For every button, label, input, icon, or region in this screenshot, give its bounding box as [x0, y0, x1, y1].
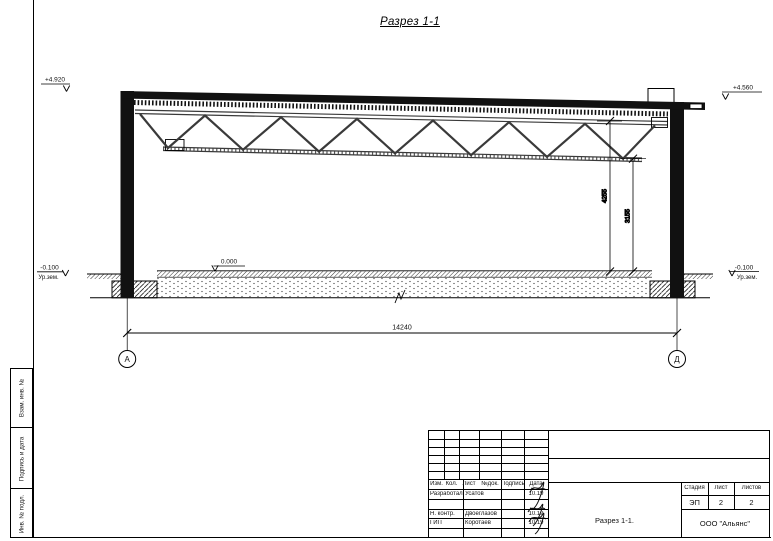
tb-sheet-number: 2: [708, 498, 734, 507]
svg-text:+4.560: +4.560: [733, 85, 753, 92]
margin-box-inv: Инв. № подл.: [11, 488, 32, 538]
right-parapet: [648, 89, 674, 103]
roof-truss: [135, 110, 668, 162]
tb-line: [501, 479, 502, 537]
elevation-ground-right: -0.100 Ур.зем.: [729, 265, 759, 282]
tb-date-2: 10.19: [524, 511, 548, 517]
tb-date-1: 10.19: [524, 491, 548, 497]
tb-role-razrabotal: Разработал: [430, 491, 463, 497]
tb-col-list: Лист: [459, 481, 479, 487]
margin-box-podpis-label: Подпись и дата: [18, 436, 25, 481]
tb-line: [524, 479, 525, 537]
walls: [121, 91, 685, 298]
svg-text:0.000: 0.000: [221, 259, 238, 266]
axis-letter-right: Д: [674, 355, 680, 364]
tb-role-nkontr: Н. контр.: [430, 511, 463, 517]
left-wall: [121, 91, 135, 298]
svg-text:-0.100: -0.100: [40, 265, 59, 272]
elevation-roof-right: +4.560: [722, 85, 762, 100]
tb-stage-value: ЭП: [681, 498, 708, 507]
margin-box-inv-label: Инв. № подл.: [18, 494, 25, 533]
drawing-sheet: Разрез 1-1: [0, 0, 773, 541]
tb-line: [681, 509, 769, 510]
elevation-floor-zero: 0.000: [212, 259, 245, 272]
tb-line: [429, 499, 548, 500]
tb-col-kol: Кол.: [444, 481, 459, 487]
tb-col-ndok: №док.: [479, 481, 501, 487]
tb-name-dvoeglazov: Двоеглазов: [465, 511, 500, 517]
span-dimension: 14240 А Д: [119, 298, 686, 368]
ground-label-left: Ур.зем.: [38, 275, 59, 281]
ground-label-right: Ур.зем.: [737, 275, 758, 281]
tb-col-izm: Изм.: [429, 481, 444, 487]
tb-col-podpis: Подпись: [501, 481, 524, 487]
tb-sheets-total: 2: [734, 498, 769, 507]
tb-sheet-label: Лист: [708, 485, 734, 491]
tb-stage-label: Стадия: [681, 485, 708, 491]
tb-line: [429, 455, 548, 456]
margin-box-podpis: Подпись и дата: [11, 427, 32, 489]
elevation-ground-left: -0.100 Ур.зем.: [37, 265, 69, 282]
margin-box-vzam-label: Взам. инв. №: [18, 379, 25, 417]
tb-line: [429, 471, 548, 472]
tb-sheet-name: Разрез 1-1.: [548, 516, 681, 525]
tb-line: [548, 458, 769, 459]
svg-text:-0.100: -0.100: [735, 265, 754, 272]
margin-box-vzam: Взам. инв. №: [11, 369, 32, 427]
tb-line: [429, 447, 548, 448]
tb-line: [681, 495, 769, 496]
axis-letter-left: А: [125, 355, 131, 364]
margin-stamp-column: Взам. инв. № Подпись и дата Инв. № подл.: [10, 368, 33, 538]
tb-line: [429, 528, 548, 529]
tb-line: [429, 463, 548, 464]
tb-col-data: Дата: [524, 481, 548, 487]
tb-sheets-label: Листов: [734, 485, 769, 491]
tb-line: [548, 482, 769, 483]
dim-3155: 3155: [625, 209, 632, 224]
dim-14240: 14240: [392, 325, 412, 332]
elevation-roof-left: +4.920: [41, 77, 70, 92]
svg-text:+4.920: +4.920: [45, 77, 65, 84]
floor-slab: [90, 271, 710, 298]
tb-role-gip: ГИП: [430, 520, 463, 526]
tb-name-usatov: Усатов: [465, 491, 500, 497]
tb-line: [463, 479, 464, 537]
tb-date-3: 10.19: [524, 520, 548, 526]
tb-line: [429, 439, 548, 440]
tb-name-korotaev: Коротаев: [465, 520, 500, 526]
title-block: Изм. Кол. Лист №док. Подпись Дата Разраб…: [428, 430, 770, 538]
dim-4255: 4255: [602, 189, 609, 204]
tb-company: ООО "Альянс": [681, 519, 769, 528]
right-wall: [670, 102, 684, 298]
